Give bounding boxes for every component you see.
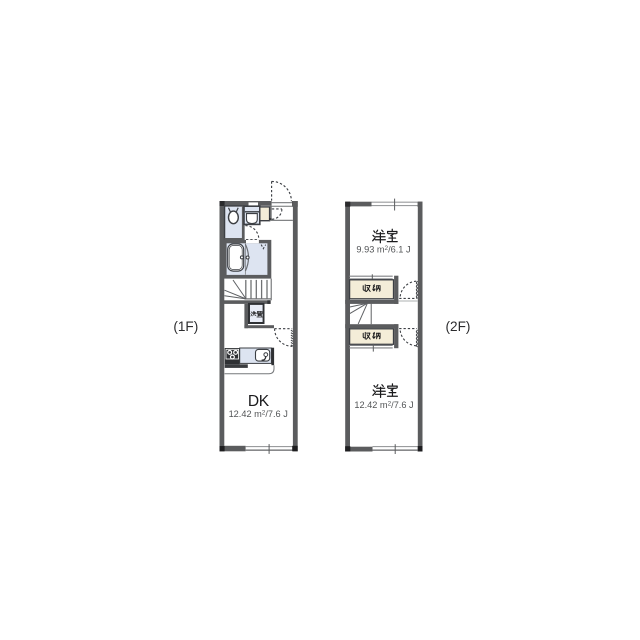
svg-text:DK: DK	[248, 393, 270, 410]
svg-text:12.42 m2/7.6 J: 12.42 m2/7.6 J	[354, 400, 413, 410]
svg-text:(2F): (2F)	[446, 319, 471, 334]
svg-text:9.93 m2/6.1 J: 9.93 m2/6.1 J	[356, 245, 410, 255]
svg-text:(1F): (1F)	[173, 319, 198, 334]
svg-text:12.42 m2/7.6 J: 12.42 m2/7.6 J	[229, 409, 288, 419]
